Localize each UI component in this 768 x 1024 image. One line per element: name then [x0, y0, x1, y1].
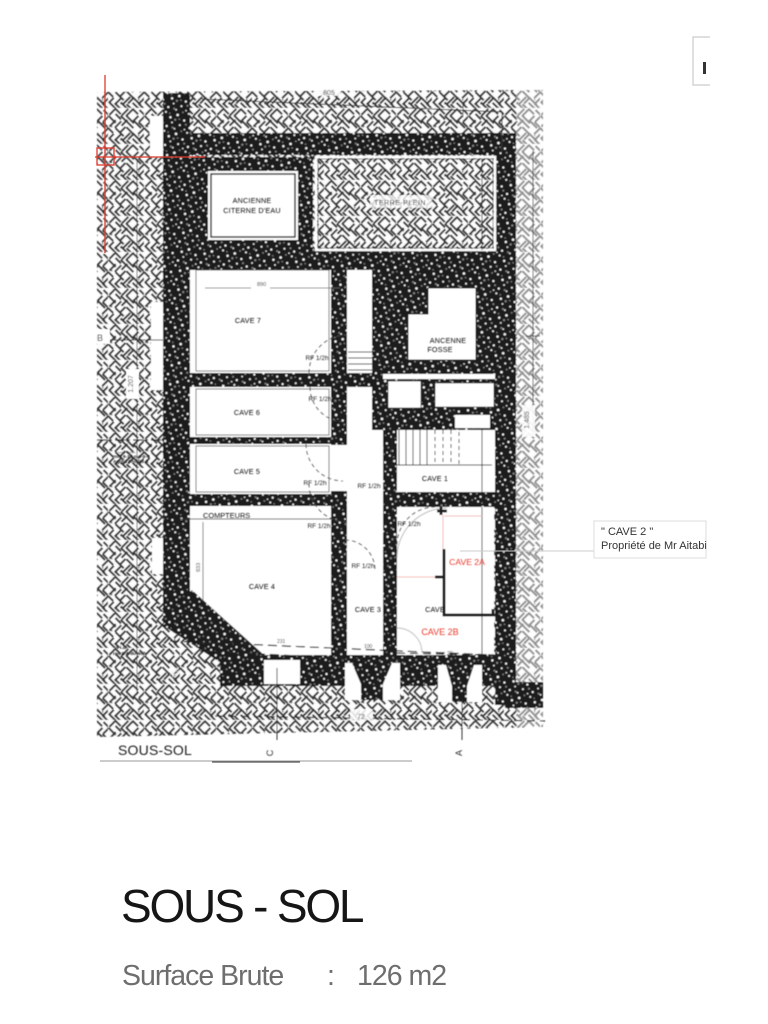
- svg-text:890: 890: [257, 282, 266, 288]
- svg-text:CAVE 1: CAVE 1: [422, 474, 448, 483]
- svg-text:CITERNE D'EAU: CITERNE D'EAU: [223, 206, 281, 215]
- svg-text:Propriété de Mr Aitabi: Propriété de Mr Aitabi: [601, 540, 707, 552]
- svg-text:Agrtui Fhcsto 4: Agrtui Fhcsto 4: [113, 459, 149, 465]
- svg-text:FOSSE: FOSSE: [427, 345, 452, 354]
- svg-text:A: A: [454, 750, 464, 756]
- svg-text:126 m2: 126 m2: [357, 960, 446, 992]
- svg-text:SOUS - SOL: SOUS - SOL: [121, 880, 364, 932]
- svg-text:833: 833: [196, 563, 202, 572]
- svg-text:CAVE 2A: CAVE 2A: [449, 557, 485, 567]
- svg-text:TERRE-PLEIN: TERRE-PLEIN: [374, 198, 426, 207]
- svg-text:ANCIENNE: ANCIENNE: [233, 196, 272, 205]
- svg-text:B: B: [97, 333, 103, 343]
- svg-text:ANCENNE: ANCENNE: [430, 336, 467, 345]
- svg-text:231: 231: [277, 639, 286, 645]
- svg-text:CAVE 3: CAVE 3: [355, 605, 381, 614]
- svg-text:SOUS-SOL: SOUS-SOL: [118, 742, 192, 758]
- svg-text:9 i.al: 9 i.al: [116, 645, 127, 651]
- svg-text:CAVE 7: CAVE 7: [235, 316, 261, 325]
- svg-text:RF 1/2h: RF 1/2h: [303, 480, 327, 487]
- svg-text:RF 1/2h: RF 1/2h: [307, 523, 331, 530]
- svg-text:RF 1/2h: RF 1/2h: [357, 483, 381, 490]
- svg-text:RF 1/2h: RF 1/2h: [397, 521, 421, 528]
- svg-text:C: C: [265, 749, 275, 756]
- svg-text:Surface Brute: Surface Brute: [122, 960, 283, 992]
- svg-text:RF 1/2h: RF 1/2h: [308, 396, 332, 403]
- svg-text:CAVE 5: CAVE 5: [234, 467, 260, 476]
- svg-text:CAVE 4: CAVE 4: [249, 582, 275, 591]
- svg-text:805: 805: [323, 90, 335, 97]
- svg-text:1.485: 1.485: [524, 411, 531, 429]
- svg-text:CAVE 2B: CAVE 2B: [421, 627, 458, 637]
- svg-text::: :: [327, 960, 334, 992]
- svg-text:RF 1/2h: RF 1/2h: [351, 563, 375, 570]
- svg-text:72: 72: [357, 714, 365, 721]
- svg-text:COMPTEURS: COMPTEURS: [203, 511, 250, 520]
- svg-text:CAVE: CAVE: [425, 605, 445, 614]
- svg-text:1.207: 1.207: [128, 375, 135, 393]
- svg-text:CAVE 6: CAVE 6: [234, 408, 260, 417]
- svg-text:" CAVE 2 ": " CAVE 2 ": [601, 526, 653, 538]
- svg-text:RF 1/2h: RF 1/2h: [305, 355, 329, 362]
- svg-text:roc 9-8-tkr-9ch: roc 9-8-tkr-9ch: [113, 651, 146, 657]
